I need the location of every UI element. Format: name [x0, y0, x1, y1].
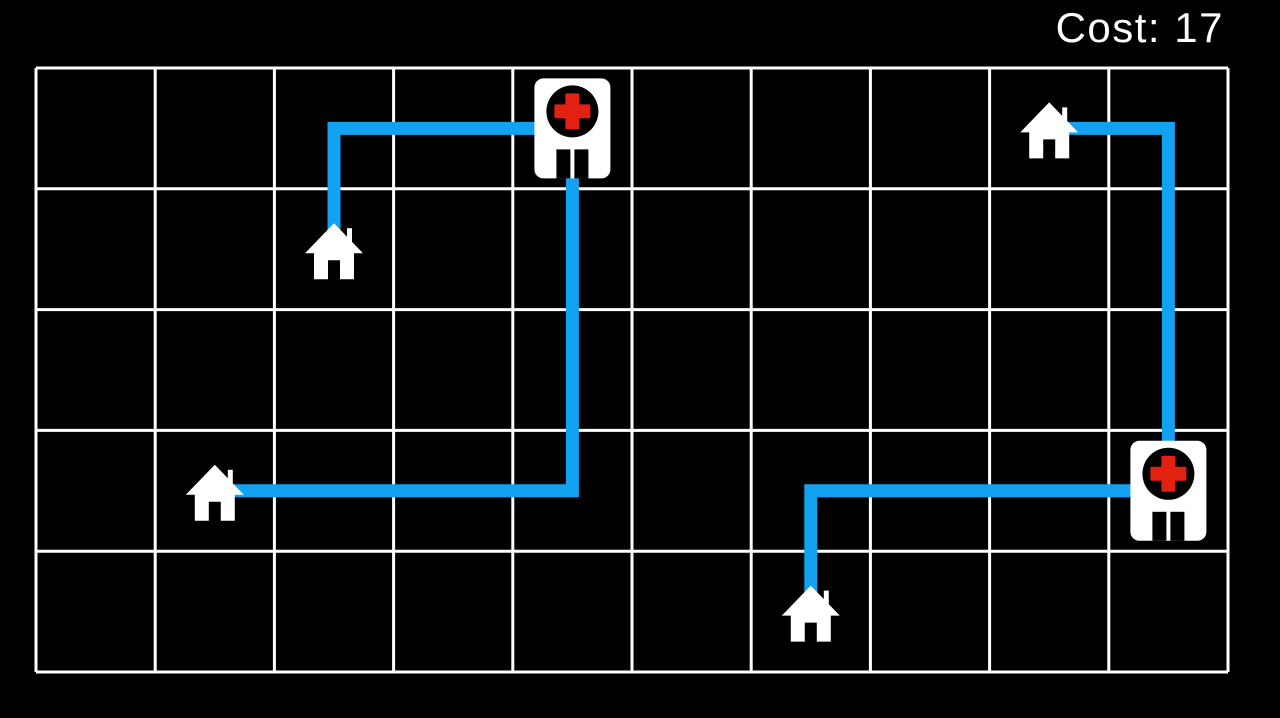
house-icon: [186, 465, 244, 521]
grid-lines: [36, 68, 1228, 672]
hospital-door-left: [1152, 512, 1166, 541]
hospital-2[interactable]: [1130, 441, 1206, 541]
house-icon: [1020, 102, 1078, 158]
house-icon: [782, 586, 840, 642]
hospital-door-right: [1170, 512, 1184, 541]
cost-label: Cost: 17: [1056, 4, 1224, 52]
house-2[interactable]: [305, 223, 363, 279]
hospital-door-right: [574, 149, 588, 178]
house-icon: [305, 223, 363, 279]
house-1[interactable]: [1020, 102, 1078, 158]
house-4[interactable]: [782, 586, 840, 642]
hospital-door-left: [556, 149, 570, 178]
hospital-1[interactable]: [534, 78, 610, 178]
board[interactable]: [0, 0, 1280, 718]
game-screen: Cost: 17: [0, 0, 1280, 718]
house-3[interactable]: [186, 465, 244, 521]
